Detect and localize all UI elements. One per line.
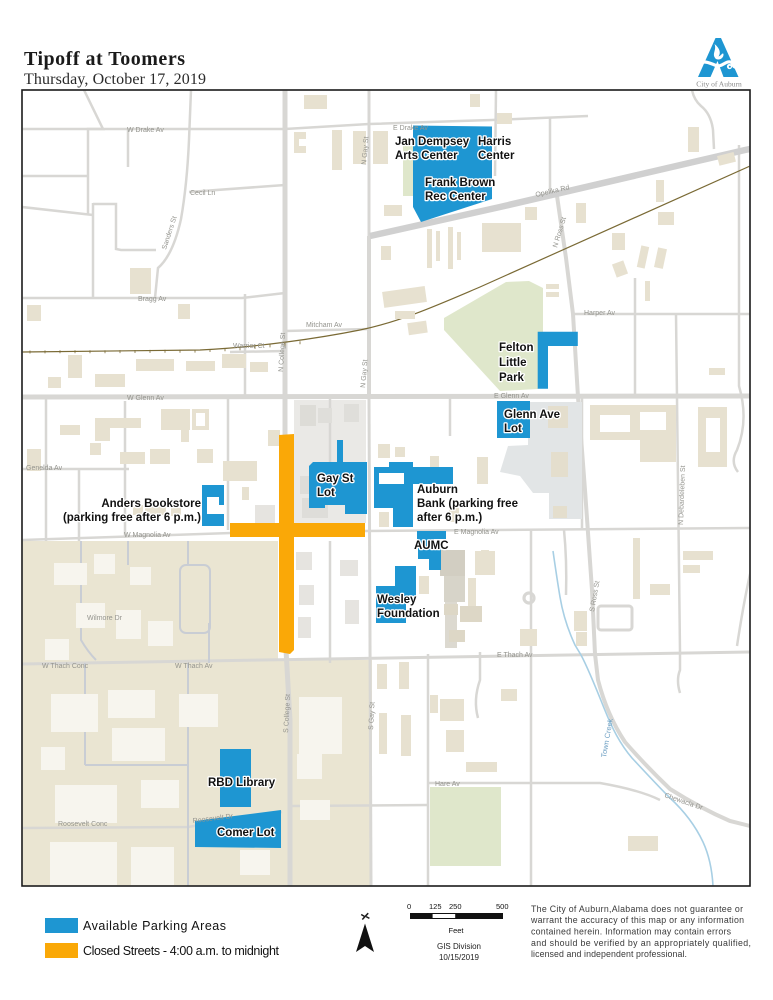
svg-text:Cecil Ln: Cecil Ln [190,190,215,197]
svg-text:Auburn: Auburn [417,484,458,496]
svg-text:Harper Av: Harper Av [584,310,615,317]
svg-text:AUMC: AUMC [414,540,449,552]
svg-text:Harris: Harris [478,136,511,148]
svg-text:Center: Center [478,150,515,162]
svg-text:Rec Center: Rec Center [425,191,486,203]
svg-text:E Magnolia Av: E Magnolia Av [454,529,499,536]
svg-text:Hare Av: Hare Av [435,781,460,788]
svg-text:Available Parking Areas: Available Parking Areas [83,919,226,933]
svg-text:W Thach Conc: W Thach Conc [42,663,89,670]
svg-text:Park: Park [499,372,525,384]
svg-text:Bragg Av: Bragg Av [138,296,167,303]
svg-text:W Drake Av: W Drake Av [127,127,164,134]
svg-text:Mitcham Av: Mitcham Av [306,322,343,329]
svg-text:Lot: Lot [317,487,335,499]
svg-text:Anders Bookstore: Anders Bookstore [101,498,201,510]
svg-text:W Magnolia Av: W Magnolia Av [124,532,171,539]
svg-text:W Thach Av: W Thach Av [175,663,213,670]
svg-text:Closed Streets - 4:00 a.m. to: Closed Streets - 4:00 a.m. to midnight [83,944,280,958]
svg-text:Gay St: Gay St [317,473,354,485]
svg-text:Jan Dempsey: Jan Dempsey [395,136,470,148]
svg-text:Wesley: Wesley [377,594,417,606]
svg-text:Roosevelt Conc: Roosevelt Conc [58,821,108,828]
svg-text:Arts Center: Arts Center [395,150,458,162]
svg-text:250: 250 [449,902,462,911]
svg-text:125: 125 [429,902,442,911]
svg-text:Bank (parking free: Bank (parking free [417,498,518,510]
svg-text:E Glenn Av: E Glenn Av [494,393,529,400]
svg-text:RBD Library: RBD Library [208,777,276,789]
svg-text:after 6 p.m.): after 6 p.m.) [417,512,482,524]
svg-text:Frank Brown: Frank Brown [425,177,495,189]
svg-text:The City of Auburn,Alabama doe: The City of Auburn,Alabama does not guar… [531,904,743,914]
svg-text:E Thach Av: E Thach Av [497,652,533,659]
svg-text:E Drake Av: E Drake Av [393,125,428,132]
svg-text:W Glenn Av: W Glenn Av [127,395,164,402]
svg-text:contained herein. Information: contained herein. Information may contai… [531,927,732,937]
svg-text:City of Auburn: City of Auburn [696,80,742,89]
svg-text:Thursday, October 17, 2019: Thursday, October 17, 2019 [24,71,206,88]
svg-text:Glenn Ave: Glenn Ave [504,409,560,421]
svg-text:S Gay St: S Gay St [368,702,376,730]
svg-text:Tipoff at Toomers: Tipoff at Toomers [24,48,185,70]
svg-text:licensed and independent profe: licensed and independent professional. [531,949,687,959]
svg-text:Genelda Av: Genelda Av [26,465,63,472]
svg-text:Wilmore Dr: Wilmore Dr [87,615,123,622]
svg-text:Little: Little [499,357,526,369]
svg-text:Felton: Felton [499,342,534,354]
svg-text:and should be verified by an a: and should be verified by an appropriate… [531,938,751,948]
svg-text:0: 0 [407,902,411,911]
svg-text:GIS Division: GIS Division [437,942,481,951]
svg-text:Lot: Lot [504,423,522,435]
svg-text:500: 500 [496,902,509,911]
svg-text:(parking free after 6 p.m.): (parking free after 6 p.m.) [63,512,201,524]
svg-text:Feet: Feet [448,926,464,935]
svg-text:Comer Lot: Comer Lot [217,827,275,839]
svg-text:Foundation: Foundation [377,608,440,620]
svg-text:warrant the accuracy of this m: warrant the accuracy of this map or any … [530,915,744,925]
svg-text:10/15/2019: 10/15/2019 [439,953,480,962]
svg-text:Warrior Ct: Warrior Ct [233,343,265,350]
